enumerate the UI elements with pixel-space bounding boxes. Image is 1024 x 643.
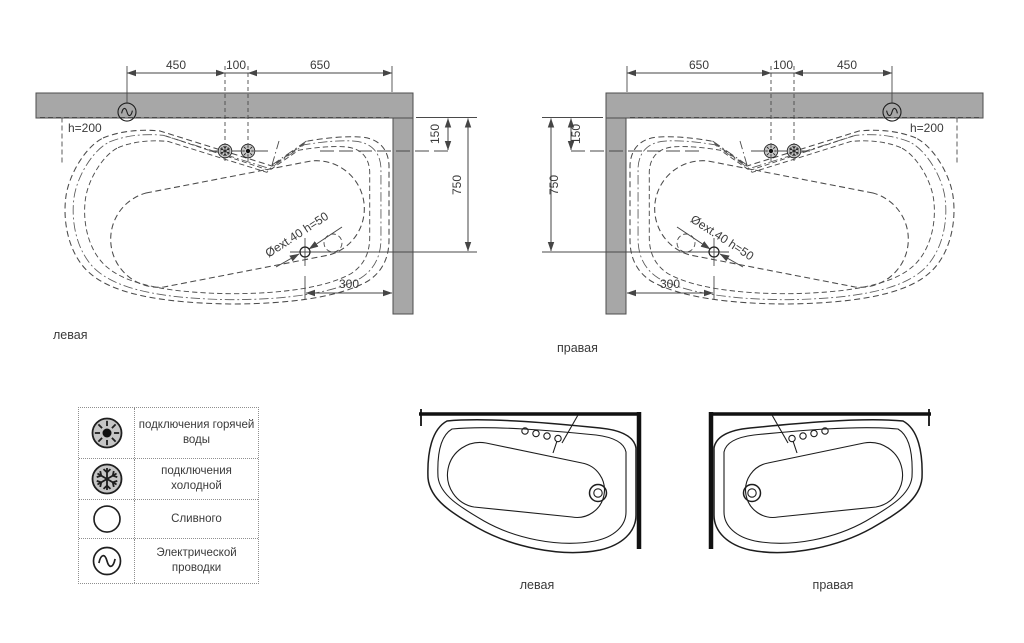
elevation-right-caption: правая [813, 578, 854, 592]
electrical-icon [79, 539, 135, 583]
dim-label: 300 [660, 277, 680, 291]
hot-water-icon [79, 408, 135, 458]
legend-row-cold-water: подключения холодной [79, 459, 258, 500]
legend-row-drain: Сливного [79, 500, 258, 539]
dim-label: 650 [689, 58, 709, 72]
legend-row-hot-water: подключения горячей воды [79, 408, 258, 459]
elevation-left-caption: левая [520, 578, 554, 592]
plan-left-caption: левая [53, 328, 87, 342]
legend-label-hot-water: подключения горячей воды [135, 408, 258, 458]
drain-label: Øext.40 h=50 [263, 209, 332, 260]
dim-label: 750 [450, 175, 464, 195]
legend-label-electrical: Электрической проводки [135, 539, 258, 583]
dim-label: 300 [339, 277, 359, 291]
dim-label: 100 [773, 58, 793, 72]
elevation-view-right: правая [709, 409, 931, 592]
dim-label: 750 [547, 175, 561, 195]
wall-height-label: h=200 [68, 121, 102, 135]
legend-label-cold-water: подключения холодной [135, 459, 258, 499]
dim-label: 100 [226, 58, 246, 72]
cold-water-icon [79, 459, 135, 499]
dim-label: 450 [837, 58, 857, 72]
bathtub-installation-drawing: 450 100 650 h=200 150 750 300 Øext.40 h=… [0, 0, 1024, 643]
dim-label: 650 [310, 58, 330, 72]
dim-label: 150 [569, 124, 583, 144]
dim-label: 150 [428, 124, 442, 144]
plan-right-caption: правая [557, 341, 598, 355]
drain-icon [79, 500, 135, 538]
wall-height-label: h=200 [910, 121, 944, 135]
legend-label-drain: Сливного [135, 500, 258, 538]
plan-view-right: 650 100 450 h=200 150 750 300 Øext.40 h=… [542, 58, 983, 355]
elevation-view-left: левая [419, 409, 641, 592]
legend-row-electrical: Электрической проводки [79, 539, 258, 583]
plan-view-left: 450 100 650 h=200 150 750 300 Øext.40 h=… [36, 58, 477, 342]
legend-table: подключения горячей воды подключения хол… [78, 407, 259, 584]
dim-label: 450 [166, 58, 186, 72]
